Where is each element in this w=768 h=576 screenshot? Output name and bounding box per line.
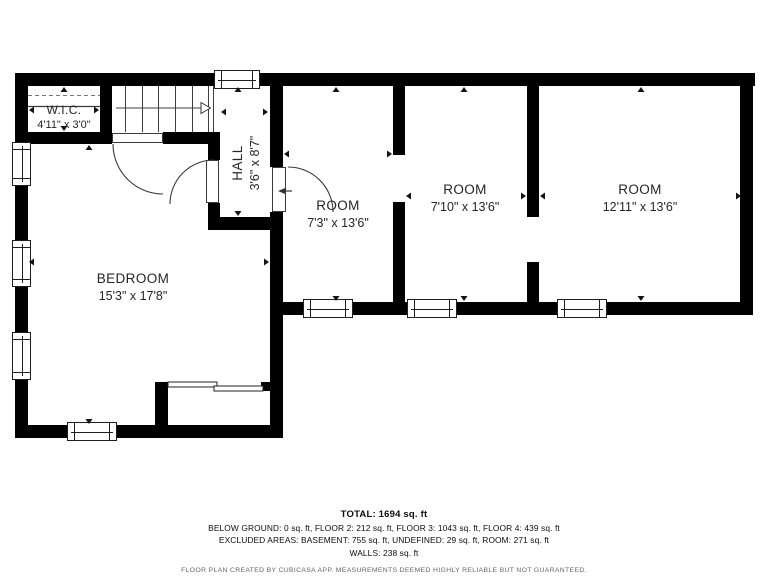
floor-areas-line: BELOW GROUND: 0 sq. ft, FLOOR 2: 212 sq.… — [0, 523, 768, 533]
measurement-arrow — [461, 87, 468, 92]
excluded-areas-line: EXCLUDED AREAS: BASEMENT: 755 sq. ft, UN… — [0, 535, 768, 545]
measurement-arrow — [235, 87, 242, 92]
room-label-room3: ROOM 12'11" x 13'6" — [580, 182, 700, 214]
room-label-wic: W.I.C. 4'11" x 3'0" — [24, 104, 104, 132]
measurement-arrow — [638, 87, 645, 92]
doorway-entry-arrow — [278, 188, 292, 195]
room-name: BEDROOM — [63, 271, 203, 287]
measurement-arrows — [29, 87, 741, 424]
walls-area-line: WALLS: 238 sq. ft — [0, 548, 768, 558]
measurement-arrow — [736, 193, 741, 200]
measurement-arrow — [86, 145, 93, 150]
measurement-arrow — [638, 296, 645, 301]
measurement-arrow — [29, 259, 34, 266]
room-dims: 7'3" x 13'6" — [278, 216, 398, 231]
room-name: ROOM — [278, 198, 398, 214]
measurement-arrow — [540, 193, 545, 200]
room-label-hall: HALL 3'6" x 8'7" — [230, 113, 262, 213]
floor-plan: W.I.C. 4'11" x 3'0" HALL 3'6" x 8'7" BED… — [0, 0, 768, 576]
room-label-room2: ROOM 7'10" x 13'6" — [405, 182, 525, 214]
room-label-bedroom: BEDROOM 15'3" x 17'8" — [63, 271, 203, 303]
total-area-line: TOTAL: 1694 sq. ft — [0, 509, 768, 520]
measurement-arrow — [61, 87, 68, 92]
measurement-arrow — [387, 151, 392, 158]
room-dims: 7'10" x 13'6" — [405, 200, 525, 215]
disclaimer-line: FLOOR PLAN CREATED BY CUBICASA APP. MEAS… — [0, 567, 768, 574]
room-name: ROOM — [580, 182, 700, 198]
door-swing-arc-hall-bedroom — [170, 160, 214, 204]
room-label-room1: ROOM 7'3" x 13'6" — [278, 198, 398, 230]
stair-direction-arrowhead — [201, 103, 211, 114]
room-dims: 12'11" x 13'6" — [580, 200, 700, 215]
measurement-arrow — [284, 151, 289, 158]
room-dims: 15'3" x 17'8" — [63, 289, 203, 304]
measurement-arrow — [333, 87, 340, 92]
measurement-arrow — [263, 109, 268, 116]
room-dims: 4'11" x 3'0" — [24, 119, 104, 132]
room-name: W.I.C. — [24, 104, 104, 118]
area-summary: TOTAL: 1694 sq. ft BELOW GROUND: 0 sq. f… — [0, 509, 768, 574]
room-name: ROOM — [405, 182, 525, 198]
staircase — [116, 86, 214, 132]
measurement-arrow — [333, 296, 340, 301]
room-dims: 3'6" x 8'7" — [248, 113, 263, 213]
measurement-arrow — [86, 419, 93, 424]
room-name: HALL — [230, 113, 246, 213]
measurement-arrow — [221, 109, 226, 116]
floor-plan-page: { "plan": { "rooms": [ { "name": "W.I.C.… — [0, 0, 768, 576]
door-swing-arc-wic — [113, 144, 163, 194]
sliding-door-closet — [168, 382, 263, 391]
measurement-arrow — [461, 296, 468, 301]
measurement-arrow — [264, 259, 269, 266]
